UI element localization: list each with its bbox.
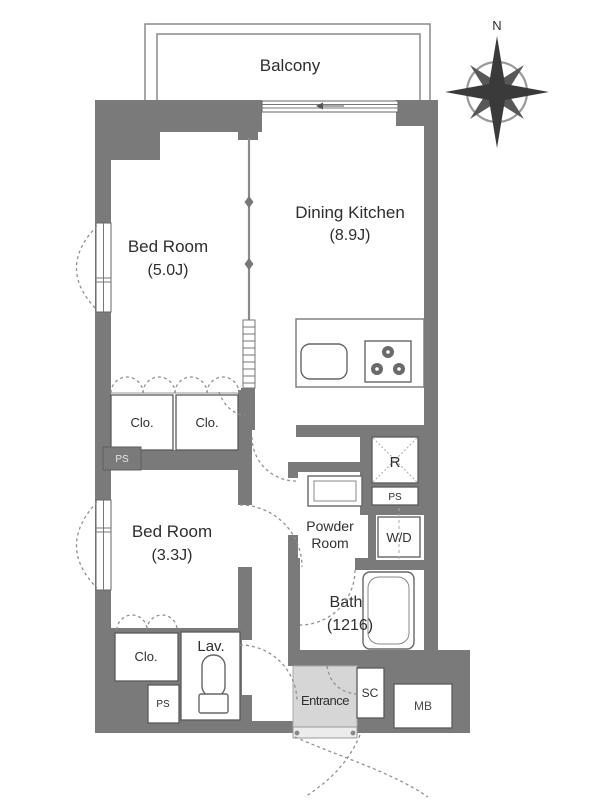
bedroom1-label: Bed Room (128, 237, 208, 256)
bedroom1-size-label: (5.0J) (148, 262, 189, 279)
entrance-door-arc (295, 737, 428, 797)
closet-label: Clo. (195, 415, 218, 430)
washer-dryer-label: W/D (386, 530, 411, 545)
closet-label: Clo. (130, 415, 153, 430)
powder-room-label-2: Room (311, 535, 348, 551)
window-bedroom2 (96, 500, 111, 590)
door-pivot (295, 731, 300, 736)
pipe-space-label: PS (115, 454, 129, 465)
lavatory-label: Lav. (197, 638, 224, 655)
closet-label: Clo. (134, 649, 157, 664)
partition-node (245, 196, 254, 208)
closet-door-arc (117, 615, 147, 630)
meter-box: MB (394, 684, 452, 728)
entrance-door-sill (293, 727, 357, 738)
compass-star-cardinal (445, 36, 549, 148)
entrance: Entrance (293, 666, 357, 738)
toilet-tank (199, 694, 228, 713)
bathtub-icon (363, 572, 414, 649)
powder-room-label-1: Powder (306, 518, 354, 534)
washbasin-icon (308, 476, 362, 506)
burner-center (375, 367, 379, 371)
refrigerator-space: R (372, 437, 418, 483)
bath-label: Bath (330, 594, 363, 611)
wall (95, 100, 262, 132)
washer-dryer-space: W/D (376, 508, 424, 562)
closet-row: Clo. Clo. (111, 393, 238, 450)
partition-sliding (243, 138, 255, 388)
bedroom2-label: Bed Room (132, 522, 212, 541)
wall-bottom (95, 721, 293, 733)
window-swing-arc (77, 226, 98, 310)
pipe-space-label: PS (156, 699, 170, 710)
toilet-bowl (202, 655, 225, 697)
closet-door-arc (111, 377, 143, 393)
bathtub-outer (363, 572, 414, 649)
closet-bottom: Clo. (115, 633, 178, 681)
pipe-space-bottom: PS (148, 685, 179, 723)
partition-node (245, 258, 254, 270)
meter-box-label: MB (414, 699, 432, 713)
bathroom: Bath (1216) (327, 572, 414, 649)
shoe-closet-label: SC (362, 686, 379, 700)
pipe-space-right: PS (372, 487, 418, 505)
closet-door-arc (207, 377, 239, 393)
wall-bath-left (288, 570, 300, 655)
window-swing-arc (77, 502, 98, 588)
accordion-door (243, 320, 255, 388)
sink-icon (301, 344, 347, 379)
burner-center (386, 350, 390, 354)
window-bedroom1 (96, 223, 111, 312)
closet-door-arc (175, 377, 207, 393)
stove-icon (365, 341, 411, 382)
wall-right (424, 100, 438, 672)
closet-door-arc (143, 377, 175, 393)
wall (288, 558, 300, 570)
dining-kitchen-label: Dining Kitchen (295, 203, 405, 222)
wall (368, 505, 376, 560)
door-pivot (351, 731, 356, 736)
refrigerator-label: R (390, 454, 401, 471)
toilet-icon (199, 655, 228, 713)
closet-door-arc (147, 615, 177, 630)
compass-icon: N (445, 18, 549, 148)
floor-plan: Balcony N (0, 0, 600, 800)
bath-size-label: (1216) (327, 617, 373, 634)
window-top-sliding (262, 101, 398, 112)
lavatory: Lav. (181, 632, 240, 720)
floor-plan-drawing: Balcony N (0, 0, 600, 800)
burner-center (397, 367, 401, 371)
entrance-label: Entrance (301, 693, 349, 708)
powder-room: Powder Room (306, 476, 362, 551)
pipe-space-label: PS (388, 492, 402, 503)
pipe-space-left: PS (103, 447, 141, 470)
dining-kitchen-size-label: (8.9J) (330, 227, 371, 244)
wall (288, 472, 298, 478)
kitchen-counter (296, 319, 424, 387)
balcony-label: Balcony (260, 56, 321, 75)
shoe-closet: SC (357, 668, 384, 718)
bedroom2-size-label: (3.3J) (152, 547, 193, 564)
wall-stub (241, 388, 255, 430)
wall (288, 535, 298, 560)
compass-north-label: N (492, 18, 501, 33)
balcony: Balcony (145, 24, 430, 100)
